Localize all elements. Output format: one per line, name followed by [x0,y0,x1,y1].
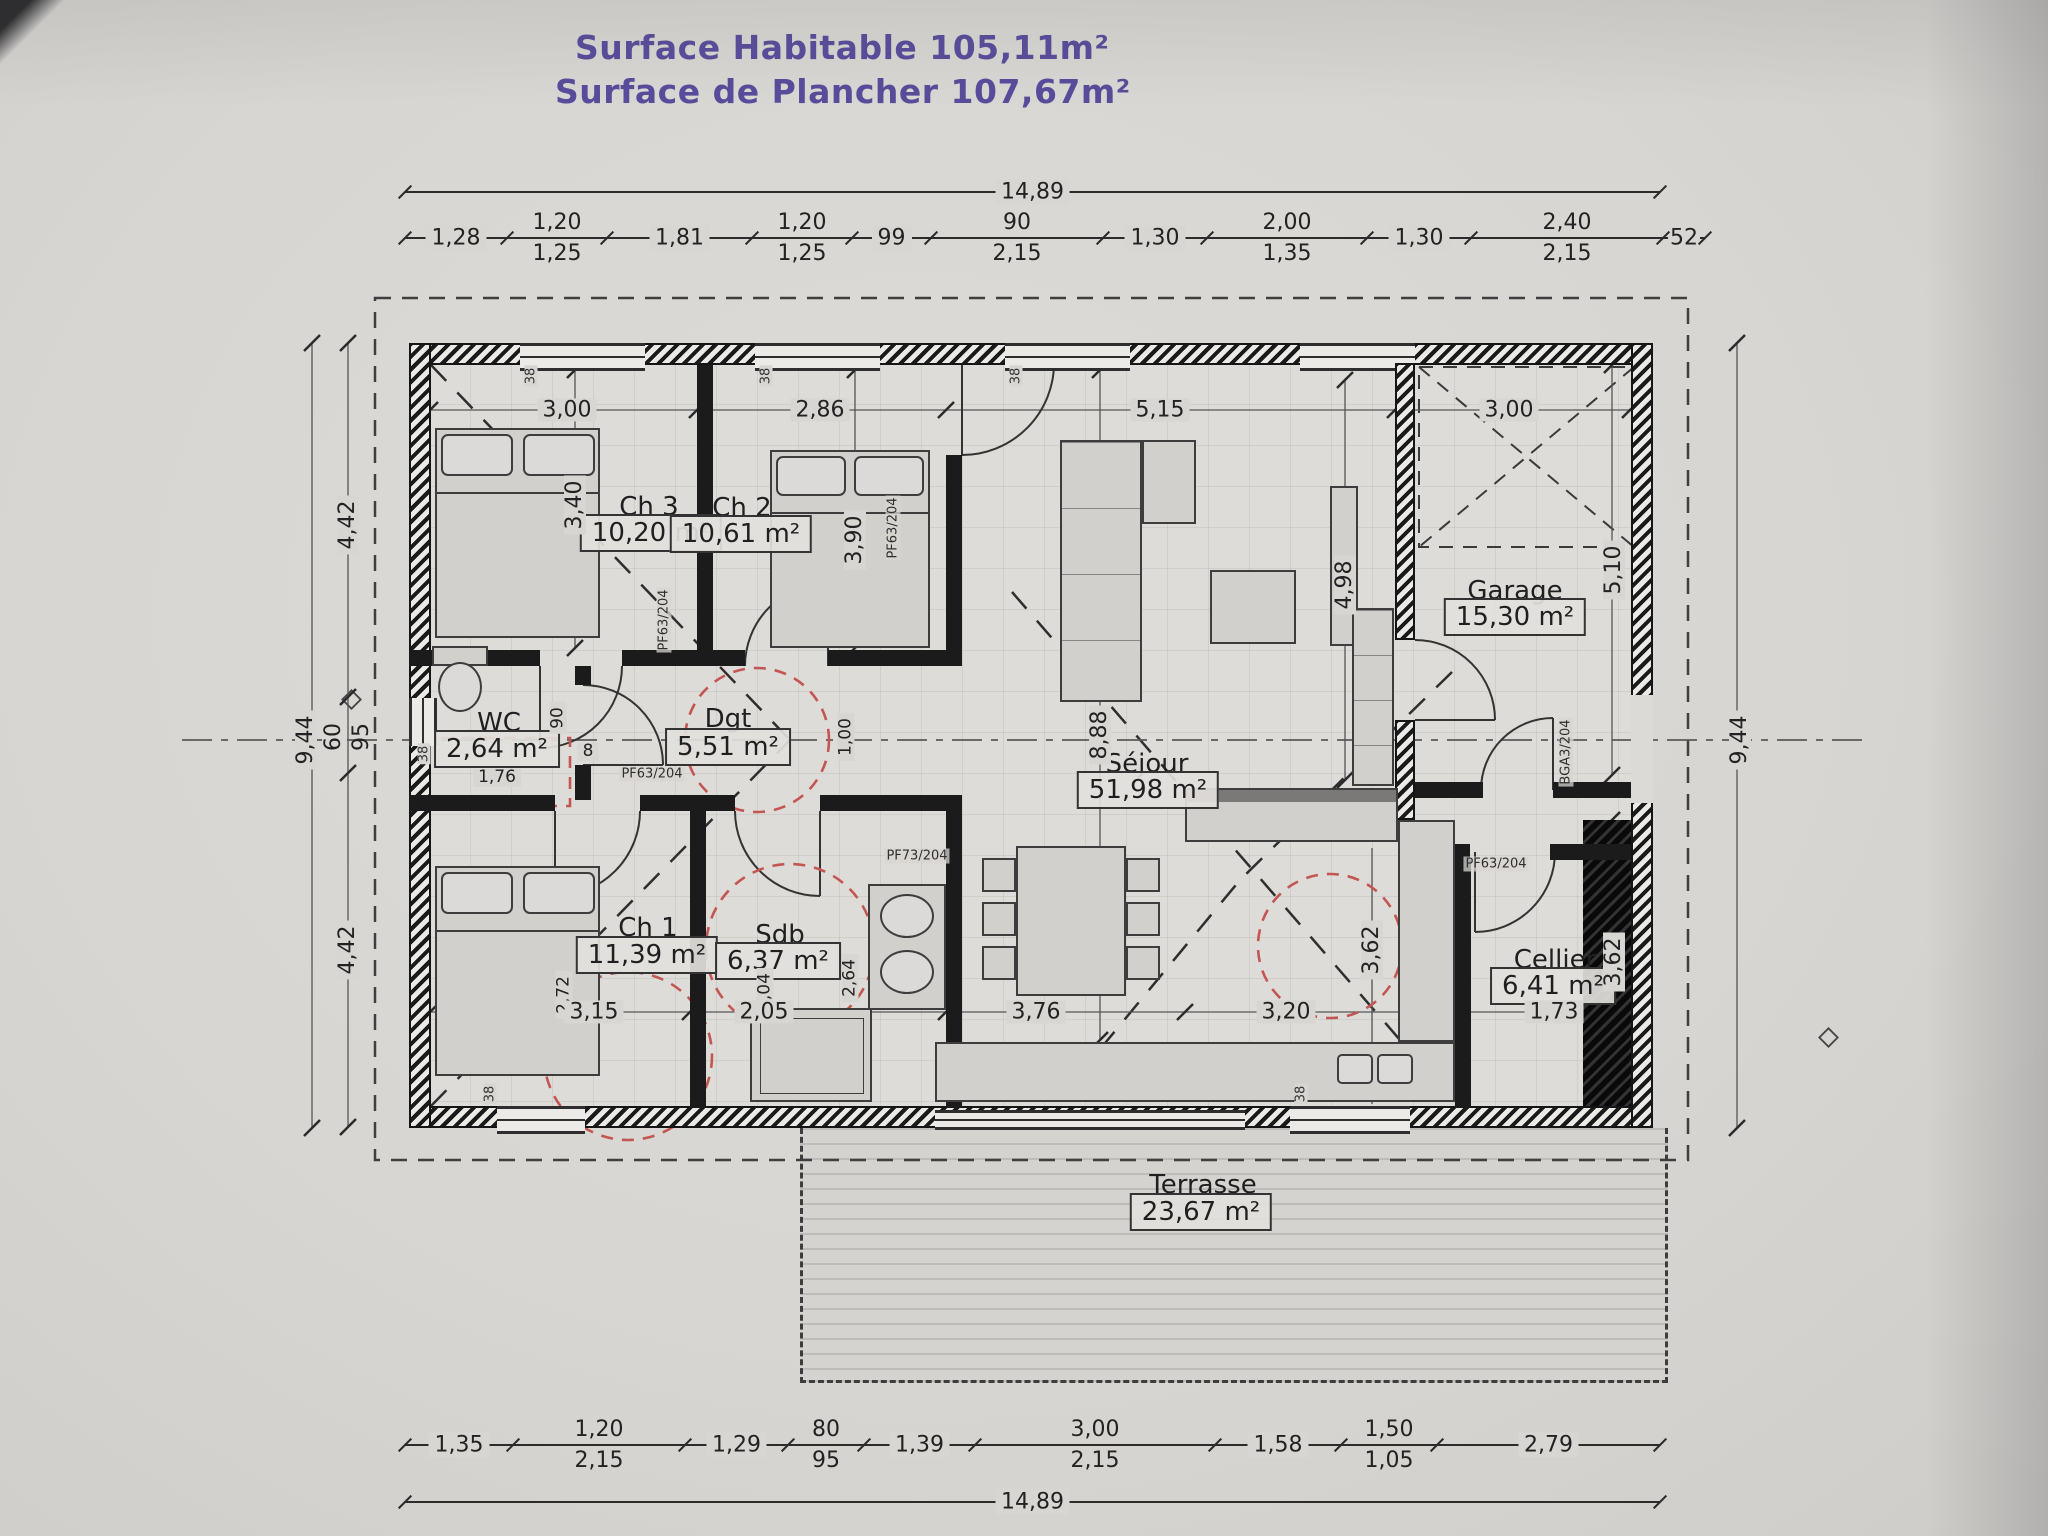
wall-hall-north-b [622,650,745,666]
dim-label: 2,00 [1263,210,1312,235]
dim-label: 1,30 [1125,226,1186,251]
dim-label: 1,20 [575,1417,624,1442]
window-ch3 [520,343,645,371]
room-area-wc: 2,64 m² [434,730,560,768]
dim-label: 1,05 [1365,1448,1414,1473]
wall-wc-a [575,666,591,685]
dim-label: 8,88 [1089,706,1111,765]
dim-label: 3,20 [1257,1000,1316,1023]
dim-label: 1,25 [533,241,582,266]
joinery-label: PF63/204 [619,767,684,782]
wall-garage-south-a [1415,782,1483,798]
dim-label: 2,64 [842,954,859,1002]
dim-label: 38 [484,1084,497,1105]
dim-label: 2,15 [993,241,1042,266]
wall-hall-north-c [828,650,962,666]
pillow [854,456,924,496]
dim-label: 1,58 [1248,1433,1309,1458]
dim-label: 3,00 [538,398,597,421]
entry-opening [1631,695,1653,803]
dim-label: 1,39 [889,1433,950,1458]
dim-label: 1,28 [426,226,487,251]
dim-label: 2,05 [735,1000,794,1023]
wall-ch3-ch2 [697,365,713,652]
dim-label: 14,89 [995,180,1070,205]
dim-label: 1,76 [473,769,521,787]
dim-label: 60 [323,718,345,756]
room-area-sejour: 51,98 m² [1077,771,1219,809]
sink-bowl [1337,1054,1373,1084]
dim-label: 3,15 [565,1000,624,1023]
pillow [523,434,595,476]
wall-cellier-west [1455,860,1471,1108]
window-ch1 [497,1106,585,1134]
wall-garage-b [1395,720,1415,820]
dim-label: 3,00 [1071,1417,1120,1442]
toilet-bowl [438,662,482,712]
dim-label: 3,00 [1480,398,1539,421]
dim-label: 80 [812,1417,840,1442]
dim-label: 2,79 [1518,1433,1579,1458]
coffee-table [1210,570,1296,644]
dim-label: 5,10 [1603,541,1625,600]
dim-label: 1,81 [649,226,710,251]
dim-label: 38 [525,366,538,387]
wall-cellier-north-b [1550,844,1631,860]
dim-label: 2,40 [1543,210,1592,235]
wall-hall-south-b [640,795,735,811]
chair [1126,858,1160,892]
pillow [441,872,513,914]
dim-label: 2,15 [1543,241,1592,266]
room-area-terrasse: 23,67 m² [1130,1193,1272,1231]
wall-wc-b [575,765,591,800]
dim-label: 1,29 [706,1433,767,1458]
washbasin [880,894,934,938]
dim-right-total: 9,44 [1729,711,1751,770]
dim-label: 5,15 [1131,398,1190,421]
dim-label: 1,00 [838,713,855,761]
room-area-ch2: 10,61 m² [670,515,812,553]
dining-table [1016,846,1126,996]
chair [982,902,1016,936]
dim-top-chain: 1,28 1,201,25 1,81 1,201,25 99 902,15 1,… [405,214,1705,262]
surface-habitable-label: Surface Habitable 105,11m² [575,26,1131,70]
dim-label: 4,42 [337,921,359,980]
room-area-dgt: 5,51 m² [665,728,791,766]
sofa-return [1142,440,1196,524]
dim-left-total: 9,44 [295,711,317,770]
dim-label: 3,62 [1603,933,1625,992]
dim-label: 4,98 [1334,556,1356,615]
dim-label: 3,40 [564,476,586,535]
dim-label: 38 [1295,1084,1308,1105]
chair [1126,902,1160,936]
dim-label: 1,30 [1389,226,1450,251]
room-area-garage: 15,30 m² [1444,598,1586,636]
dim-bottom-chain: 1,35 1,202,15 1,29 8095 1,39 3,002,15 1,… [405,1421,1660,1469]
kitchen-counter-east [1398,820,1455,1042]
joinery-label: PF63/204 [657,587,672,652]
floor-plan-sheet: Surface Habitable 105,11m² Surface de Pl… [0,0,2048,1536]
dim-label: 1,35 [1263,241,1312,266]
pillow [776,456,846,496]
terrace [800,1128,1668,1383]
room-area-sdb: 6,37 m² [715,942,841,980]
window-wc [409,698,437,746]
dim-label: 2,15 [575,1448,624,1473]
sliding-bay-sejour [935,1110,1245,1130]
chair [1126,946,1160,980]
dim-label: 95 [351,718,373,756]
dim-label: 1,35 [429,1433,490,1458]
plan-title: Surface Habitable 105,11m² Surface de Pl… [575,26,1131,114]
pillow [441,434,513,476]
dim-label: 1,20 [533,210,582,235]
window-sejour-north [1005,343,1130,371]
wall-hall-south-a [409,795,555,811]
dim-label: 1,50 [1365,1417,1414,1442]
window-ch2 [755,343,880,371]
dim-label: 38 [1010,366,1023,387]
dim-label: 2,15 [1071,1448,1120,1473]
sofa [1060,440,1142,702]
dim-label: 90 [550,702,567,734]
chair [982,858,1016,892]
tall-cabinet [1352,608,1394,786]
dim-label: 8 [578,743,599,761]
dim-label: 3,90 [844,511,866,570]
dim-label: 38 [418,744,431,765]
dim-label: 1,25 [778,241,827,266]
wall-garage-a [1395,363,1415,640]
dim-label: 2,86 [791,398,850,421]
chair [982,946,1016,980]
dim-label: 95 [812,1448,840,1473]
dim-label: 3,76 [1007,1000,1066,1023]
room-area-ch1: 11,39 m² [576,936,718,974]
dim-bottom-total: 14,89 [405,1478,1660,1526]
dim-label: 38 [760,366,773,387]
dim-label: 99 [872,226,912,251]
dim-label: 1,20 [778,210,827,235]
dim-label: 3,62 [1361,921,1383,980]
dim-top-total: 14,89 [405,168,1660,216]
joinery-label: PF63/204 [886,495,901,560]
dim-label: 14,89 [995,1490,1070,1515]
washbasin [880,950,934,994]
surface-plancher-label: Surface de Plancher 107,67m² [555,70,1131,114]
window-kitchen [1290,1106,1410,1134]
wall-ch2-sejour [946,455,962,666]
pillow [523,872,595,914]
joinery-label: PF63/204 [1463,857,1528,872]
dim-label: 52 [1668,226,1700,251]
bed-line [437,930,598,932]
dim-label: 4,42 [337,496,359,555]
dim-label: 1,73 [1525,1000,1584,1023]
wall-hall-south-c [820,795,962,811]
joinery-label: BGA3/204 [1559,717,1574,786]
dim-label: 90 [1003,210,1031,235]
shower-inner [760,1018,864,1094]
sink-bowl [1377,1054,1413,1084]
joinery-label: PF73/204 [884,849,949,864]
